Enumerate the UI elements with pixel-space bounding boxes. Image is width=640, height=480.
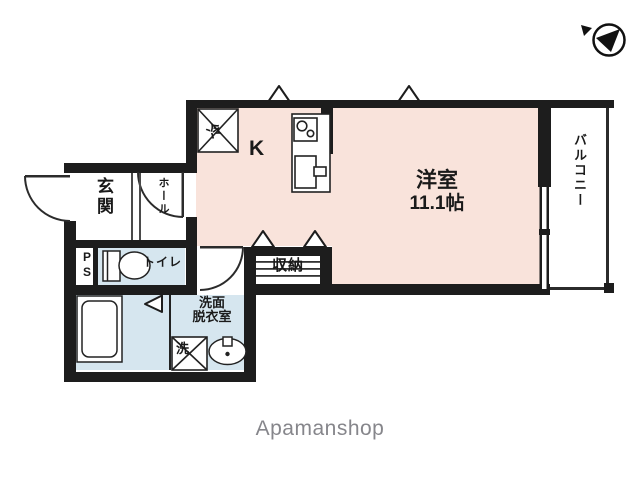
entrance-door-leaf: [25, 175, 70, 178]
closet-label: 収納: [256, 258, 320, 274]
balcony-window-latch: [539, 229, 550, 235]
wall-bottom: [244, 284, 550, 295]
wall-toilet-top: [64, 240, 197, 248]
ps-label: PS: [76, 250, 93, 286]
balcony-window-line: [540, 187, 543, 289]
washroom-door-leaf: [200, 246, 243, 249]
balcony-label: バルコニー: [566, 133, 586, 247]
washer-label: 洗: [176, 342, 196, 356]
washroom-door-arc: [200, 247, 243, 290]
kitchen-faucet: [314, 167, 326, 176]
washroom-label-line2: 脱衣室: [181, 310, 243, 324]
entrance-door-arc: [25, 176, 70, 221]
wall-closet-top: [244, 247, 332, 256]
watermark: Apamanshop: [240, 418, 400, 440]
toilet-label: トイレ: [143, 256, 191, 269]
genkan-step-line: [131, 173, 133, 240]
stove-burner: [307, 130, 313, 136]
hall-label: ホール: [152, 177, 168, 227]
wall-genkan-top: [64, 163, 197, 173]
vent-hood-icon: [398, 86, 420, 102]
wall-washroom-top: [64, 285, 197, 295]
living-kitchen-floor: [196, 108, 540, 246]
balcony-corner-post: [604, 283, 614, 293]
bath-divider: [169, 295, 171, 370]
wall-balcony-side-upper: [538, 100, 551, 187]
wall-washroom-right: [244, 247, 256, 382]
floor-plan: 玄関 ホール PS トイレ 洗面 脱衣室 洗 冷 K 収納 洋室 11.1帖 バ…: [0, 0, 640, 480]
kitchen-sink-icon: [295, 156, 316, 188]
living-room-label: 洋室: [395, 170, 479, 192]
washroom-label-line1: 洗面: [181, 296, 243, 310]
bathtub-icon: [77, 296, 122, 362]
living-floor-lower: [332, 246, 540, 284]
vent-hood-icon: [268, 86, 290, 102]
floor-plan-drawing: [0, 0, 640, 480]
north-compass-icon: [581, 25, 625, 56]
kitchen-counter: [292, 114, 330, 192]
hall-door-leaf: [182, 172, 185, 217]
closet-shelf-line: [256, 275, 320, 277]
wall-kitchen-left-upper: [186, 100, 197, 172]
wall-bath-bottom: [64, 372, 256, 382]
balcony-window-line: [547, 187, 550, 289]
balcony-rail-right: [606, 108, 609, 290]
stove-burner: [297, 121, 307, 131]
living-room-size: 11.1帖: [395, 194, 479, 214]
genkan-label: 玄関: [88, 177, 112, 237]
genkan-step-line: [139, 173, 141, 240]
kitchen-label: K: [249, 138, 277, 160]
